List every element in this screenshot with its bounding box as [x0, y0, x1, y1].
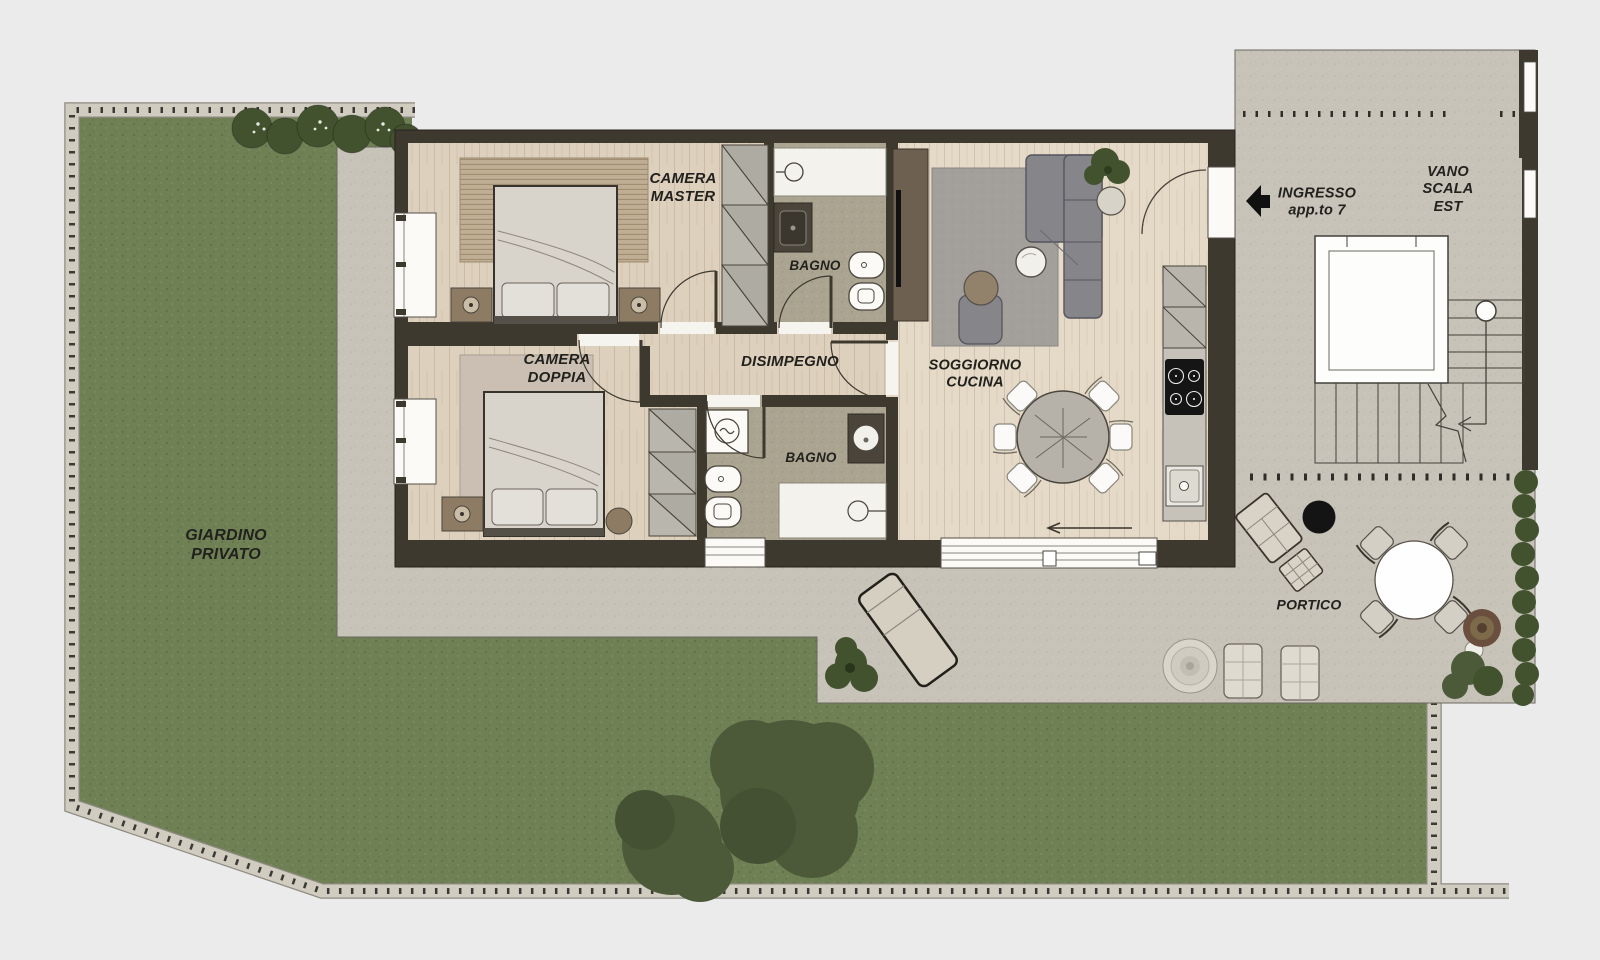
shower [774, 148, 886, 196]
stairwell-window [1524, 62, 1536, 112]
washbasin [774, 203, 812, 252]
nightstand [442, 497, 483, 531]
stool [606, 508, 632, 534]
bidet [849, 252, 884, 278]
label-portico: PORTICO [1277, 597, 1342, 614]
window-doppia [394, 399, 436, 484]
label-giardino-privato: GIARDINOPRIVATO [185, 526, 267, 564]
elevator [1315, 236, 1448, 383]
stair-column [1476, 301, 1496, 321]
double-bed [494, 186, 617, 324]
tv [896, 190, 901, 287]
label-camera-master: CAMERAMASTER [649, 170, 716, 206]
label-vano-scala-est: VANOSCALAEST [1423, 164, 1474, 216]
washing-machine [706, 410, 748, 453]
pillow [502, 283, 554, 318]
kitchen-sink [1166, 466, 1203, 506]
wardrobe [649, 409, 696, 536]
round-side-table [1303, 501, 1336, 534]
toilet [849, 283, 884, 310]
bidet [705, 466, 741, 492]
pouf [1224, 644, 1262, 698]
label-bagno-2: BAGNO [785, 450, 836, 466]
toilet [705, 497, 741, 527]
outdoor-table [1375, 541, 1453, 619]
kitchen [1163, 266, 1206, 521]
label-camera-doppia: CAMERADOPPIA [523, 351, 590, 387]
entrance-door [1208, 167, 1235, 238]
stairwell-window [1524, 170, 1536, 218]
window-master [394, 213, 436, 317]
pillow [557, 283, 609, 318]
dining-table [1017, 391, 1109, 483]
double-bed [484, 392, 604, 536]
pouf [1281, 646, 1319, 700]
pillow [492, 489, 543, 525]
cooktop [1165, 359, 1204, 415]
shower [779, 483, 886, 538]
armchair [959, 271, 1002, 344]
nightstand [619, 288, 660, 322]
pillow [546, 489, 597, 525]
coffee-table [1016, 247, 1046, 277]
wardrobe [722, 145, 768, 326]
floor-plan: GIARDINOPRIVATO CAMERAMASTER BAGNO CAMER… [0, 0, 1600, 960]
sliding-door [941, 538, 1157, 568]
label-soggiorno-cucina: SOGGIORNOCUCINA [929, 358, 1022, 393]
window-south [705, 538, 765, 567]
side-table [1097, 187, 1125, 215]
plan-graphics [0, 0, 1600, 960]
label-disimpegno: DISIMPEGNO [741, 353, 839, 371]
round-rug [1163, 639, 1217, 693]
label-bagno-1: BAGNO [789, 258, 840, 274]
tv-cabinet [893, 149, 928, 321]
nightstand [451, 288, 492, 322]
label-ingresso: INGRESSOapp.to 7 [1278, 186, 1356, 221]
washbasin [848, 414, 884, 463]
kitchen-tall-cabinets [1163, 266, 1206, 348]
